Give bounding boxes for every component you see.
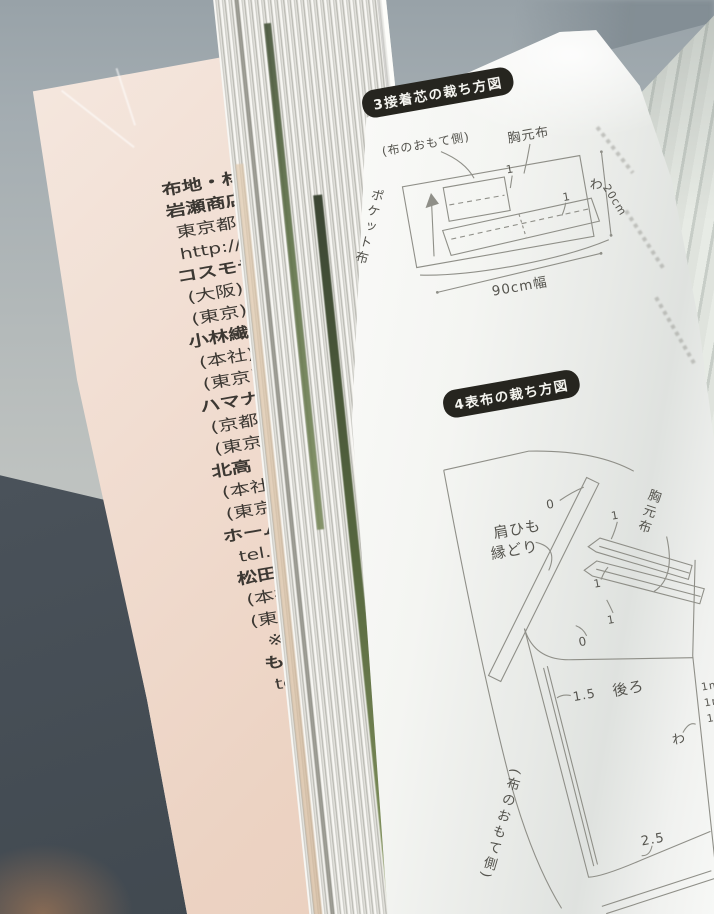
fabric-outline [402,156,594,268]
photo-open-sewing-book: 布地・材 岩瀬商店 東京都荒 http://www コスモテ (大阪)大阪 (東… [0,0,714,914]
grain-arrow-head [423,192,439,208]
seam-allowance-value: 1 [505,162,515,176]
leader-line [519,144,535,173]
fold-label: わ [671,731,687,748]
dimension-dot [600,150,603,153]
chest-piece-label: 胸元布 [507,125,551,147]
leader-line [557,694,571,698]
grain-arrow-icon [425,202,441,256]
leader-line [536,540,554,572]
pocket-piece-outline [442,197,601,256]
seam-allowance-value: 1 [562,190,572,204]
leader-line [608,522,620,539]
dimension-dot [436,291,439,294]
fabric-length-note: 1 [706,712,714,725]
fabric-length-note: 1m [703,694,714,709]
chest-piece-foldline [449,195,504,205]
seam-allowance-value: 1.5 [572,685,597,704]
seam-allowance-value: 1 [606,613,616,627]
chest-piece-rect [443,177,510,221]
chest-band-inner-line [599,532,689,588]
seam-allowance-value: 1 [610,508,620,522]
pocket-piece-divider [519,213,526,237]
seam-allowance-value: 2.5 [640,831,666,850]
leader-line [508,176,514,189]
dimension-value: 0 [577,634,588,649]
dimension-value: 0 [545,496,556,511]
dimension-dot [609,234,612,237]
height-dimension-value: 20cm [600,182,629,218]
fabric-top-edge [443,434,634,504]
back-piece-label: 後ろ [611,677,646,700]
fabric-length-note: 1m [700,679,714,694]
dimension-dot [599,252,602,255]
leader-line [607,599,613,613]
